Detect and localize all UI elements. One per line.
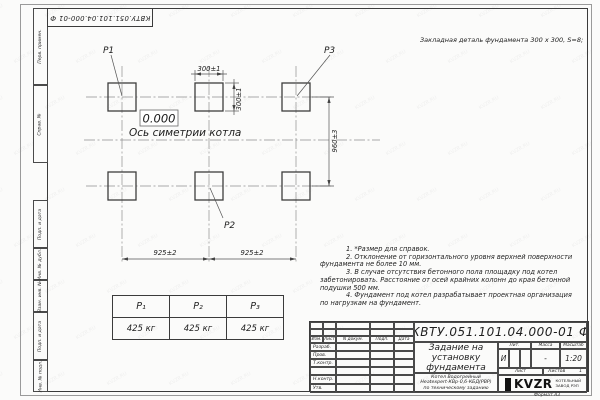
company-caption-line: ЗАВОД РЭП [556, 384, 582, 389]
pad-label-p1: Р1 [103, 46, 114, 56]
mass-header: Масса [531, 342, 560, 349]
pad-label-p3: Р3 [324, 46, 335, 56]
role-razrab: Разраб. [310, 343, 336, 351]
pad-load-table: Р₁ Р₂ Р₃ 425 кг 425 кг 425 кг [112, 295, 284, 340]
note-line: по нагрузкам на фундамент. [320, 300, 582, 308]
role-cell [370, 359, 394, 367]
arrow [327, 180, 330, 186]
role-blank [310, 367, 336, 375]
arrow [327, 97, 330, 103]
role-cell [394, 351, 414, 359]
leader-p1 [111, 55, 122, 96]
role-cell [394, 367, 414, 375]
leader-p3 [297, 55, 330, 96]
symmetry-axis-label: Ось симетрии котла [129, 127, 241, 139]
dim-text-pad-height: 300±1 [235, 88, 243, 111]
lit-cell-1: И [498, 349, 509, 368]
arrow [203, 257, 209, 260]
sheets-cell: Листов 1 [543, 368, 587, 375]
rev-cell [336, 322, 370, 329]
title-block: Изм. Лист N докум. Подп. Дата Разраб. Пр… [309, 321, 589, 392]
role-cell [336, 351, 370, 359]
role-utv: Утв. [310, 384, 336, 393]
role-prov: Пров. [310, 351, 336, 359]
load-table-header-p1: Р₁ [113, 296, 170, 318]
scale-cell: 1:20 [560, 349, 587, 368]
product-name-cell: Котел Водогрейный Heatexpert-КВр-0,6-КБД… [414, 373, 498, 393]
load-value-p1: 425 кг [113, 318, 170, 340]
load-table-header-p3: Р₃ [227, 296, 284, 318]
arrow [290, 257, 296, 260]
document-designation: КВТУ.051.101.04.000-01 Ф [414, 325, 587, 339]
lit-cell-3 [520, 349, 531, 368]
sheets-label: Листов [548, 369, 565, 374]
rev-header-data: Дата [394, 336, 414, 343]
lit-value: И [501, 354, 507, 363]
rev-header-podp: Подп. [370, 336, 394, 343]
role-cell [370, 367, 394, 375]
document-title-cell: Задание на установку фундамента [414, 342, 498, 373]
rev-cell [394, 329, 414, 336]
kvzr-logo-bar [505, 378, 511, 391]
load-value-p2: 425 кг [170, 318, 227, 340]
dimension-arrows [122, 72, 331, 260]
rev-cell [310, 322, 323, 329]
role-tkontr: Т.контр. [310, 359, 336, 367]
role-cell [394, 359, 414, 367]
leader-p2 [210, 188, 223, 218]
rev-cell [336, 329, 370, 336]
product-name-line: по техническому заданию [423, 386, 488, 392]
role-cell [336, 367, 370, 375]
load-table-header-p2: Р₂ [170, 296, 227, 318]
document-title-line: установку [432, 353, 481, 363]
rev-cell [323, 329, 336, 336]
mass-value: - [544, 354, 547, 363]
lit-cell-2 [509, 349, 520, 368]
role-cell [370, 351, 394, 359]
scale-value: 1:20 [565, 354, 582, 363]
centerlines [84, 66, 380, 263]
pad-label-p2: Р2 [224, 221, 235, 231]
notes-block: 1. *Размер для справок. 2. Отклонение от… [320, 246, 582, 308]
arrow [122, 257, 128, 260]
rev-cell [394, 322, 414, 329]
company-caption: КОТЕЛЬНЫЙ ЗАВОД РЭП [556, 379, 582, 388]
role-cell [394, 384, 414, 393]
lit-header: Лит. [498, 342, 531, 349]
document-title-line: фундамента [426, 363, 486, 373]
sheets-value: 1 [579, 369, 582, 374]
mass-cell: - [531, 349, 560, 368]
rev-header-ndocum: N докум. [336, 336, 370, 343]
role-cell [336, 384, 370, 393]
rev-cell [370, 329, 394, 336]
dim-text-row-spacing: 960±3 [331, 130, 339, 153]
rev-cell [323, 322, 336, 329]
role-cell [394, 343, 414, 351]
arrow [209, 257, 215, 260]
rev-header-izm: Изм. [310, 336, 323, 343]
role-cell [336, 375, 370, 384]
table-header-row: Р₁ Р₂ Р₃ [113, 296, 284, 318]
role-cell [336, 359, 370, 367]
sheet-cell: Лист [498, 368, 543, 375]
role-cell [370, 384, 394, 393]
company-cell: KVZR КОТЕЛЬНЫЙ ЗАВОД РЭП [498, 375, 587, 393]
embedded-detail-note: Закладная деталь фундамента 300 x 300, S… [420, 36, 583, 44]
dim-text-pad-width: 300±1 [198, 65, 221, 73]
elevation-mark-text: 0.000 [143, 112, 176, 126]
drawing-sheet: KVZR.RUKVZR.RUKVZR.RUKVZR.RUKVZR.RUKVZR.… [0, 0, 600, 400]
document-title-line: Задание на [429, 343, 484, 353]
role-cell [336, 343, 370, 351]
role-cell [370, 343, 394, 351]
designation-cell: КВТУ.051.101.04.000-01 Ф [414, 322, 587, 342]
rev-cell [370, 322, 394, 329]
kvzr-logo: KVZR [514, 377, 553, 391]
dim-text-col-spacing-right: 925±2 [241, 249, 264, 257]
rev-cell [310, 329, 323, 336]
scale-header: Масштаб [560, 342, 587, 349]
dim-text-col-spacing-left: 925±2 [154, 249, 177, 257]
role-cell [370, 375, 394, 384]
load-value-p3: 425 кг [227, 318, 284, 340]
table-value-row: 425 кг 425 кг 425 кг [113, 318, 284, 340]
role-nkontr: Н.контр. [310, 375, 336, 384]
role-cell [394, 375, 414, 384]
rev-header-list: Лист [323, 336, 336, 343]
format-label: Формат А3 [534, 393, 560, 398]
